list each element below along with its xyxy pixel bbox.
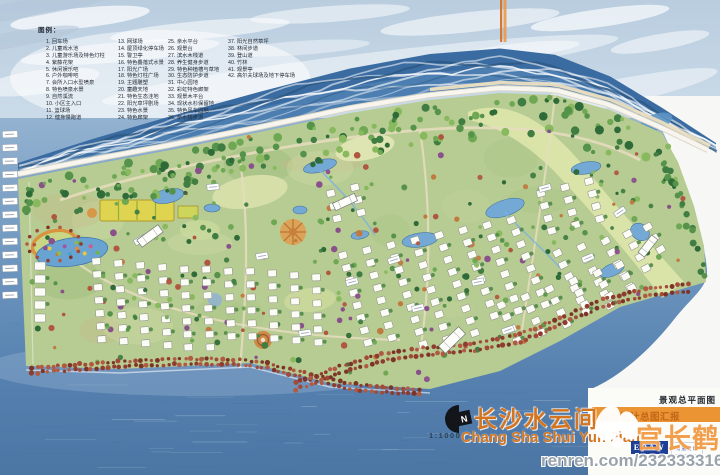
- legend-item: 36. 亲水栈步道: [168, 115, 219, 122]
- legend-item: 16. 特色叠落式水景: [118, 60, 164, 67]
- legend-item: 37. 阳光自然草坪: [228, 39, 295, 46]
- legend-column-1: 1. 回车场2. 儿童戏水池3. 儿童游乐场及特色灯柱4. 紫藤花架5. 休闲娱…: [46, 39, 105, 122]
- legend-item: 25. 亲水平台: [168, 39, 219, 46]
- legend-item: 3. 儿童游乐场及特色灯柱: [46, 53, 105, 60]
- legend-item: 27. 滨水木栈道: [168, 53, 219, 60]
- legend-item: 9. 自然溪流: [46, 94, 105, 101]
- legend-item: 35. 特色风车园地: [168, 108, 219, 115]
- legend-item: 26. 观景台: [168, 46, 219, 53]
- presentation-board: 图例： 1. 回车场2. 儿童戏水池3. 儿童游乐场及特色灯柱4. 紫藤花架5.…: [0, 0, 720, 475]
- legend-column-3: 25. 亲水平台26. 观景台27. 滨水木栈道28. 养生健身步道29. 特色…: [168, 39, 219, 122]
- watermark-logo-petal: [612, 437, 623, 448]
- legend-item: 21. 特色生态洼地: [118, 94, 164, 101]
- legend: 图例： 1. 回车场2. 儿童戏水池3. 儿童游乐场及特色灯柱4. 紫藤花架5.…: [36, 24, 336, 128]
- legend-item: 38. 林间步道: [228, 46, 295, 53]
- legend-item: 22. 阳光草坪剧场: [118, 101, 164, 108]
- legend-item: 14. 屋顶绿化停车场: [118, 46, 164, 53]
- legend-item: 1. 回车场: [46, 39, 105, 46]
- legend-item: 24. 特色廊架: [118, 115, 164, 122]
- legend-item: 34. 现状水杉保留地: [168, 101, 219, 108]
- legend-item: 15. 警卫亭: [118, 53, 164, 60]
- legend-item: 42. 高尔夫球场及地下停车场: [228, 73, 295, 80]
- legend-column-4: 37. 阳光自然草坪38. 林间步道39. 登山道40. 竹林41. 观景亭42…: [228, 39, 295, 80]
- legend-item: 11. 篮球场: [46, 108, 105, 115]
- drawing-type-label: 景观总平面图: [659, 394, 716, 406]
- legend-item: 33. 观景木平台: [168, 94, 219, 101]
- watermark-url: renren.com/232333316: [541, 451, 720, 471]
- legend-item: 40. 竹林: [228, 60, 295, 67]
- project-title-cn: 长沙水云间: [474, 400, 599, 434]
- legend-item: 39. 登山道: [228, 53, 295, 60]
- legend-item: 4. 紫藤花架: [46, 60, 105, 67]
- legend-title: 图例：: [38, 24, 61, 34]
- legend-item: 23. 特色水景: [118, 108, 164, 115]
- scale-label: 1:1000: [429, 431, 461, 440]
- legend-item: 28. 养生健身步道: [168, 60, 219, 67]
- legend-column-2: 13. 网球场14. 屋顶绿化停车场15. 警卫亭16. 特色叠落式水景17. …: [118, 39, 164, 122]
- legend-item: 10. 小区主入口: [46, 101, 105, 108]
- legend-item: 2. 儿童戏水池: [46, 46, 105, 53]
- legend-item: 12. 健身慢跑道: [46, 115, 105, 122]
- legend-item: 13. 网球场: [118, 39, 164, 46]
